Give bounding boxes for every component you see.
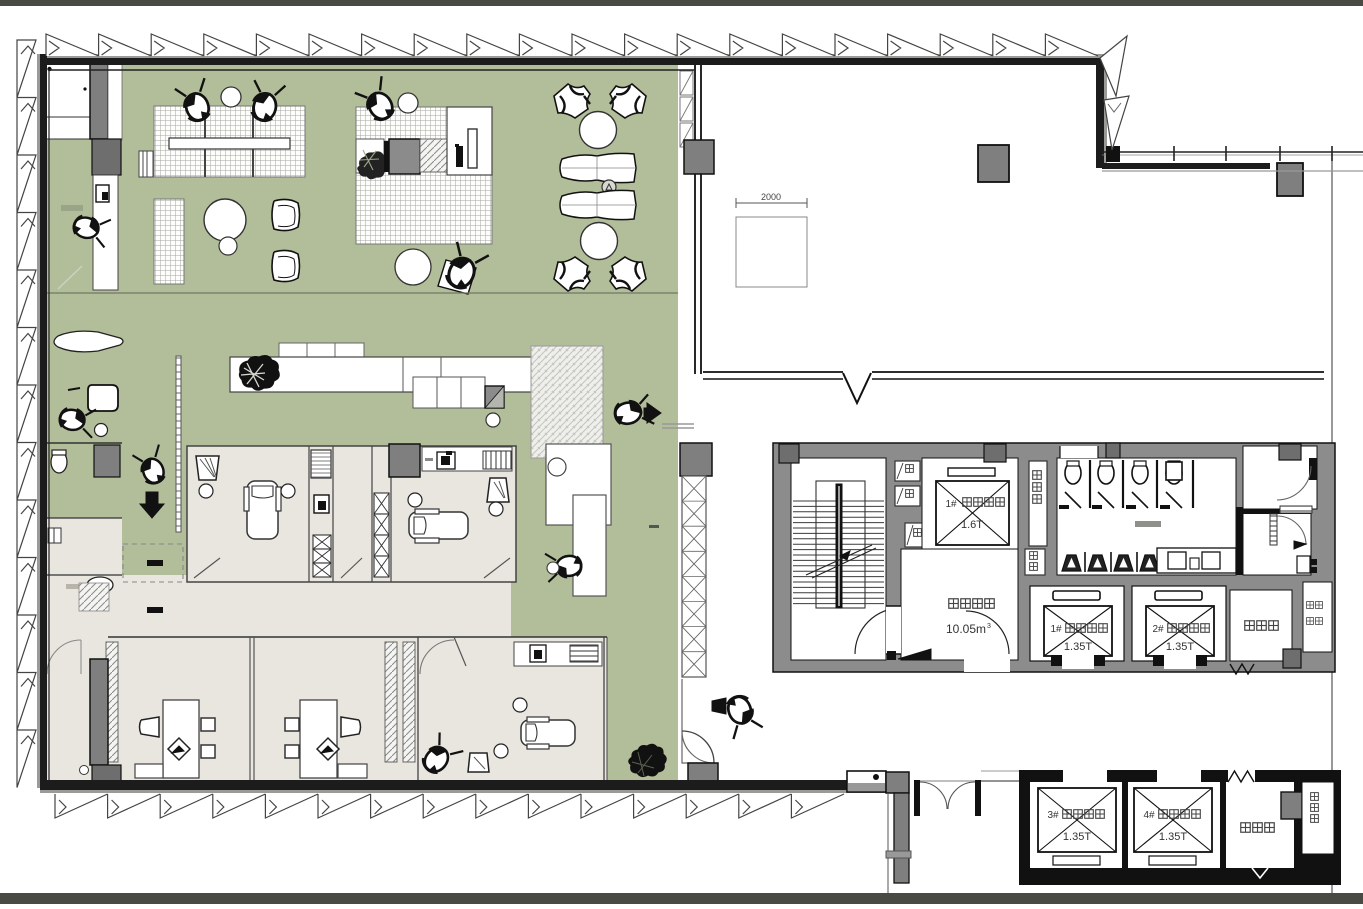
svg-text:4#: 4#: [1143, 810, 1155, 821]
svg-text:1.35T: 1.35T: [1159, 831, 1187, 843]
svg-text:2000: 2000: [761, 192, 781, 202]
svg-text:10.05m: 10.05m: [946, 622, 986, 636]
svg-text:1.35T: 1.35T: [1063, 831, 1091, 843]
svg-text:1.6T: 1.6T: [961, 519, 983, 531]
svg-text:1#: 1#: [1050, 624, 1062, 635]
svg-text:1.35T: 1.35T: [1166, 641, 1194, 653]
svg-text:1#: 1#: [945, 499, 957, 510]
svg-text:1.35T: 1.35T: [1064, 641, 1092, 653]
svg-text:2#: 2#: [1152, 624, 1164, 635]
svg-text:3: 3: [987, 623, 991, 630]
svg-text:3#: 3#: [1047, 810, 1059, 821]
